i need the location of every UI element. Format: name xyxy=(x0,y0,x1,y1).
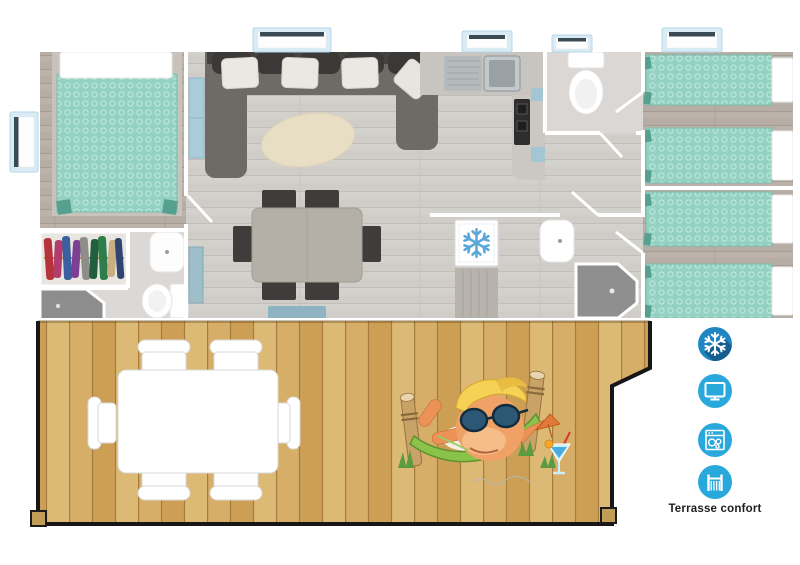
sink-basin xyxy=(489,60,515,87)
shower-tray-1 xyxy=(40,289,104,320)
sunglasses-lens xyxy=(493,405,519,427)
burner xyxy=(517,104,527,114)
outdoor-chair xyxy=(210,486,262,500)
window-bedroom xyxy=(662,28,722,52)
terrace xyxy=(31,320,650,526)
single-bed-3 xyxy=(643,192,793,246)
sofa-pillow xyxy=(221,57,259,89)
shower-drain xyxy=(56,304,60,308)
washbasin-2-faucet xyxy=(558,239,562,243)
shower-2-drain xyxy=(610,289,615,294)
dishwasher-icon xyxy=(698,423,732,457)
amenity-television xyxy=(698,374,732,408)
sunglasses-lens xyxy=(461,409,487,431)
deck-shadow xyxy=(38,320,650,323)
kitchen-blue-accent xyxy=(531,88,545,101)
dining-chair xyxy=(262,190,296,209)
deck-post xyxy=(601,508,616,523)
double-bed-pillows xyxy=(60,52,172,78)
pillow xyxy=(772,195,793,243)
sofa-pillow xyxy=(341,57,378,88)
terrace-railing-icon xyxy=(698,465,732,499)
scene-graphic xyxy=(0,0,800,565)
kitchen-counter xyxy=(420,50,545,95)
outdoor-chair xyxy=(138,486,190,500)
window-kitchen xyxy=(462,31,512,52)
orange-slice xyxy=(545,440,553,448)
tv-icon xyxy=(698,374,732,408)
dining-chair xyxy=(305,190,339,209)
pillow xyxy=(772,131,793,180)
dining-chair xyxy=(305,281,339,300)
wardrobe xyxy=(40,232,128,286)
floor-plan xyxy=(10,28,795,320)
washbasin-faucet xyxy=(165,250,169,254)
utility-cabinet xyxy=(455,268,498,320)
hanging-clothes xyxy=(44,236,125,280)
single-bed-1 xyxy=(643,55,793,105)
sofa-pillow xyxy=(281,57,318,88)
window-left xyxy=(10,112,38,172)
amenity-air-conditioning xyxy=(698,327,732,361)
burner xyxy=(517,121,527,131)
outdoor-chair-seat xyxy=(98,403,116,443)
master-bedroom xyxy=(52,50,182,216)
outdoor-table xyxy=(118,370,278,473)
pillow xyxy=(772,267,793,315)
terrace-caption: Terrasse confort xyxy=(648,503,782,515)
toilet-2-seat xyxy=(575,79,597,109)
washbasin-2 xyxy=(540,220,574,262)
toilet-1-seat xyxy=(148,290,166,312)
blue-bench xyxy=(268,306,326,320)
dining-chair xyxy=(262,281,296,300)
shower-tray-2 xyxy=(576,264,637,318)
dining-chair xyxy=(362,226,381,262)
deck-post xyxy=(31,511,46,526)
amenity-terrace xyxy=(698,465,732,499)
wc xyxy=(568,52,604,114)
dining-chair xyxy=(233,226,252,262)
bed-corner-accent xyxy=(56,199,72,215)
amenity-dishwasher xyxy=(698,423,732,457)
snowflake-icon xyxy=(698,327,732,361)
mobile-home-plan-page: Terrasse confort xyxy=(0,0,800,565)
double-bed-blanket xyxy=(57,74,177,212)
window-wc xyxy=(552,35,592,52)
single-bed-2 xyxy=(643,128,793,183)
single-bed-4 xyxy=(643,264,793,318)
bed-corner-accent xyxy=(162,199,178,215)
toilet-2-tank xyxy=(568,52,604,68)
pillow xyxy=(772,58,793,102)
window-living xyxy=(253,28,331,52)
kitchen-blue-accent xyxy=(531,147,545,162)
blue-cabinet xyxy=(189,247,203,303)
